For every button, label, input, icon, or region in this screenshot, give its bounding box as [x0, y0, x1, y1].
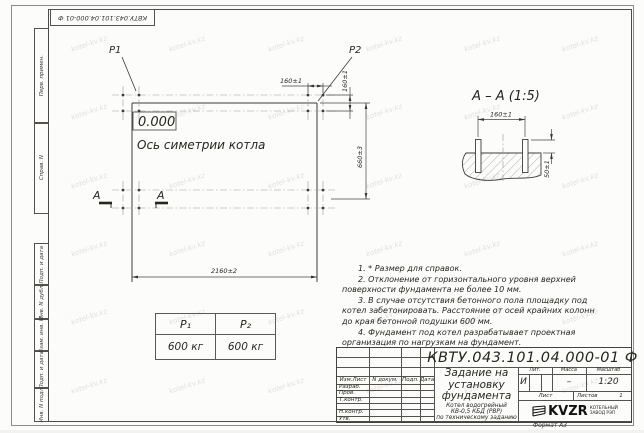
company-logo: KVZR КОТЕЛЬНЫЙ ЗАВОД РЭП	[519, 401, 631, 421]
load-point-2-label: P2	[349, 45, 361, 56]
drawing-sheet: { "watermark": { "text": "kotel-kv.kz" }…	[0, 0, 644, 430]
section-view	[462, 134, 541, 181]
loads-table-value-p1: 600 кг	[155, 335, 216, 360]
dim-160-horizontal-value: 160±1	[280, 77, 302, 85]
format-label: Формат А3	[470, 422, 630, 429]
section-dim-160-value: 160±1	[490, 111, 512, 119]
section-dim-160	[478, 116, 525, 137]
col-header-n-dokum: N докум.	[369, 376, 401, 384]
col-header-data: Дата	[420, 376, 434, 384]
scale-value: 1:20	[586, 374, 631, 392]
section-dim-50-value: 50±1	[543, 160, 551, 178]
level-mark-value: 0.000	[138, 115, 175, 130]
loads-table-value-row: 600 кг 600 кг	[155, 335, 276, 360]
lit-value: И	[518, 374, 529, 392]
kvzr-spring-icon	[532, 405, 546, 418]
row-label-utv: Утв.	[339, 416, 369, 422]
dim-2160-value: 2160±2	[211, 267, 237, 275]
title-block: Изм.Лист N докум. Подп. Дата Разраб. Про…	[336, 347, 632, 423]
note-3: 3. В случае отсутствия бетонного пола пл…	[342, 296, 598, 328]
loads-table: P₁ P₂ 600 кг 600 кг	[155, 313, 276, 361]
section-letter-right: А	[156, 189, 165, 202]
section-letter-left: А	[92, 189, 101, 202]
col-header-podp: Подп.	[401, 376, 420, 384]
logo-text: KVZR	[548, 404, 588, 419]
logo-caption: КОТЕЛЬНЫЙ ЗАВОД РЭП	[590, 406, 618, 416]
dim-160-vertical-value: 160±1	[341, 70, 349, 92]
sheet-label: Лист	[518, 391, 573, 400]
foundation-block	[462, 153, 541, 180]
loads-table-header-row: P₁ P₂	[155, 313, 276, 335]
loads-table-header-p1: P₁	[155, 313, 216, 335]
load-leaders	[122, 57, 352, 101]
boiler-axis-label: Ось симетрии котла	[137, 138, 265, 152]
note-1: 1. * Размер для справок.	[342, 264, 598, 275]
dim-660-value: 660±3	[356, 146, 364, 168]
loads-table-header-p2: P₂	[216, 313, 276, 335]
section-bolt-left	[476, 140, 482, 173]
sheets-label: Листов	[577, 391, 611, 400]
notes-block: 1. * Размер для справок. 2. Отклонение о…	[342, 264, 598, 349]
mass-value: –	[552, 374, 586, 392]
logo-caption-line: ЗАВОД РЭП	[590, 411, 618, 416]
document-number: КВТУ.043.101.04.000-01 Ф	[434, 348, 631, 367]
section-view-title: А – А (1:5)	[471, 89, 540, 104]
col-header-izm-list: Изм.Лист	[337, 376, 369, 384]
document-title-line: фундамента	[435, 391, 518, 403]
document-title: Задание на установку фундамента Котел во…	[435, 368, 518, 422]
note-2: 2. Отклонение от горизонтального уровня …	[342, 275, 598, 296]
sheets-value: 1	[611, 391, 631, 400]
load-point-1-label: P1	[109, 45, 121, 56]
note-4: 4. Фундамент под котел разрабатывает про…	[342, 328, 598, 349]
document-subtitle-line: Котел водогрейный	[435, 403, 518, 409]
loads-table-value-p2: 600 кг	[216, 335, 276, 360]
document-title-line: Задание на	[435, 368, 518, 380]
section-bolt-right	[523, 140, 529, 173]
section-cut-marks	[99, 203, 168, 208]
